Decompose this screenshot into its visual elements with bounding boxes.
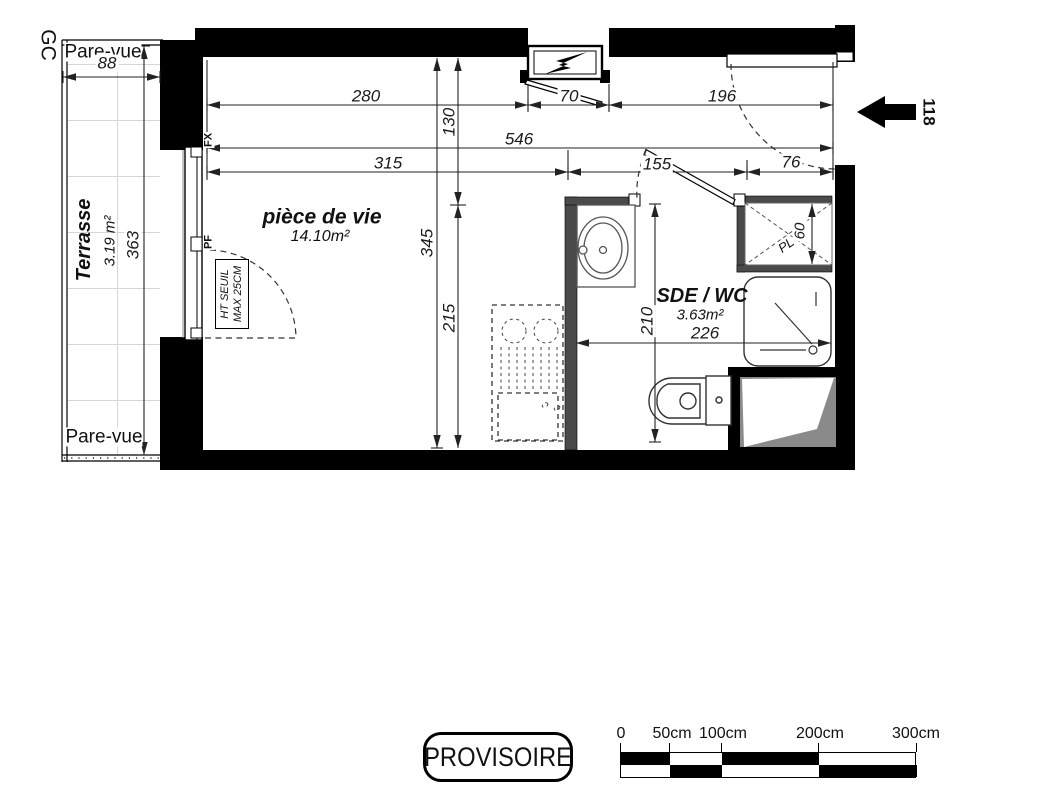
technical-shaft [740, 377, 836, 447]
dim-mid-closet: 76 [780, 154, 803, 171]
window-fixed-label: FX [204, 132, 215, 148]
pare-vue-bottom-label: Pare-vue [65, 428, 142, 447]
dim-bathroom-depth: 210 [639, 305, 656, 337]
scale-tick-50 [669, 743, 670, 752]
window-door-label: PF [204, 234, 215, 250]
scale-label-0: 0 [617, 726, 626, 742]
dim-total-width: 546 [503, 131, 535, 148]
entrance-arrow-icon [857, 96, 916, 128]
floor-plan-canvas: GC Pare-vue Pare-vue Terrasse 3.19 m² pi… [0, 0, 1052, 800]
scale-label-200: 200cm [796, 726, 844, 742]
scale-bar [620, 752, 916, 778]
terrace-name: Terrasse [74, 199, 94, 282]
bathroom-area: 3.63m² [677, 308, 724, 323]
scale-tick-200 [818, 743, 819, 752]
stamp-text: PROVISOIRE [424, 742, 572, 773]
scale-tick-300 [916, 743, 917, 752]
washbasin [577, 205, 635, 287]
dim-bathroom-width: 226 [689, 325, 721, 342]
dim-closet-depth: 60 [793, 221, 808, 242]
dim-mid-door: 155 [641, 156, 673, 173]
kitchenette [492, 305, 563, 441]
dim-mid-left: 315 [372, 155, 404, 172]
scale-tick-100 [721, 743, 722, 752]
bathroom-name: SDE / WC [656, 286, 747, 306]
scale-label-50: 50cm [652, 726, 691, 742]
terrace-area: 3.19 m² [103, 216, 118, 267]
threshold-note-line1: HT SEUIL [219, 269, 232, 319]
scale-label-100: 100cm [699, 726, 747, 742]
dim-top-left: 280 [350, 88, 382, 105]
shower [744, 277, 831, 366]
entry-door-leaf [727, 54, 837, 67]
dim-entrance: 118 [921, 98, 938, 125]
entry-door-jamb [836, 52, 853, 61]
living-room-area: 14.10m² [291, 229, 350, 245]
toilet [649, 376, 731, 425]
dim-entry-depth: 130 [441, 106, 458, 138]
scale-tick-0 [620, 743, 621, 752]
threshold-note-line2: MAX 25CM [232, 266, 245, 322]
dim-room-depth: 345 [419, 227, 436, 259]
dim-top-panel: 70 [558, 88, 581, 105]
threshold-note: HT SEUIL MAX 25CM [215, 259, 249, 329]
dim-kitchen-depth: 215 [441, 302, 458, 334]
living-room-name: pièce de vie [262, 207, 381, 228]
dim-terrace-width: 88 [96, 55, 119, 72]
scale-label-300: 300cm [892, 726, 940, 742]
floor-plan-drawing [0, 0, 1052, 800]
window-bay [183, 147, 202, 340]
dim-terrace-length: 363 [125, 229, 142, 261]
gc-label: GC [38, 29, 59, 61]
provisional-stamp: PROVISOIRE [423, 732, 573, 782]
dim-top-right: 196 [706, 88, 738, 105]
